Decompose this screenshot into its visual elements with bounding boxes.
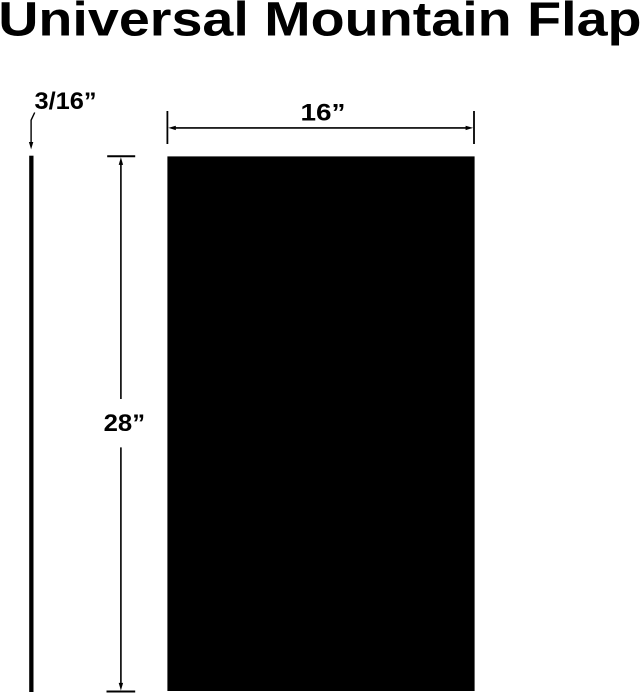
svg-text:16”: 16”	[301, 100, 346, 126]
svg-text:3/16”: 3/16”	[35, 89, 97, 115]
svg-text:Universal Mountain Flap: Universal Mountain Flap	[0, 0, 640, 46]
svg-text:28”: 28”	[104, 411, 146, 437]
